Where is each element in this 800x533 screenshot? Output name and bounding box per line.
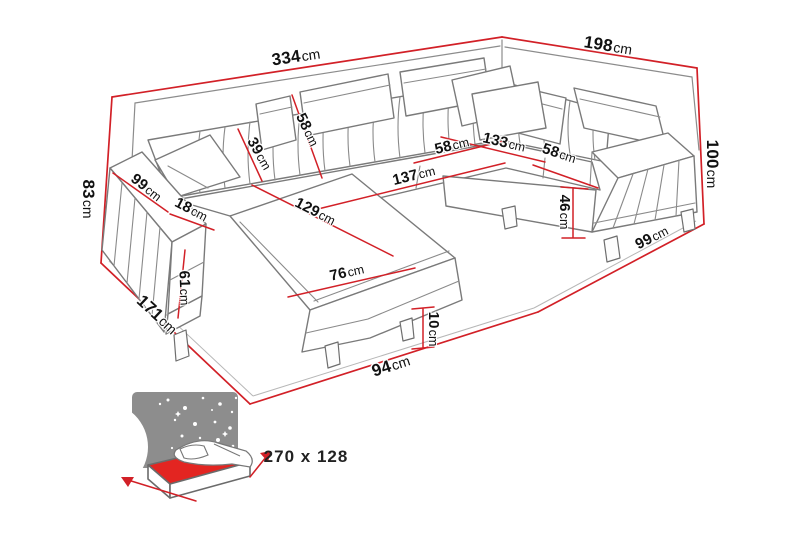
dim-label-armrest-height: 61cm — [175, 270, 192, 305]
dim-label-right-depth: 99cm — [633, 223, 671, 253]
dim-label-right-width: 198cm — [583, 33, 634, 58]
dim-label-corner-width: 133cm — [481, 130, 527, 155]
dim-label-chaise-length: 129cm — [292, 195, 338, 229]
diagram-canvas: 334cm 198cm 83cm 100cm 171cm 94cm 99cm 3… — [0, 0, 800, 533]
dim-label-armrest-length: 99cm — [127, 171, 164, 205]
dim-label-front-width: 94cm — [370, 351, 413, 380]
dim-label-right-height: 100cm — [703, 140, 721, 189]
dim-label-seat-length: 137cm — [391, 163, 437, 189]
dim-label-back-width: 334cm — [271, 45, 322, 70]
dim-label-chaise-width: 76cm — [328, 261, 365, 284]
sleeping-area-size-label: 270 x 128 — [264, 447, 349, 467]
dim-label-right-seat-depth: 58cm — [540, 141, 578, 167]
dim-label-left-height: 83cm — [79, 180, 97, 219]
dim-label-seat-depth: 58cm — [433, 134, 471, 158]
dim-label-left-depth: 171cm — [133, 292, 181, 338]
dim-label-armrest-width: 18cm — [172, 195, 210, 225]
dimension-labels: 334cm 198cm 83cm 100cm 171cm 94cm 99cm 3… — [0, 0, 800, 533]
dim-label-backrest-height: 39cm — [243, 135, 274, 173]
dim-label-leg-height: 10cm — [425, 312, 441, 347]
dim-label-backrest-full-height: 58cm — [292, 111, 322, 149]
dim-label-seat-height: 46cm — [556, 195, 572, 230]
